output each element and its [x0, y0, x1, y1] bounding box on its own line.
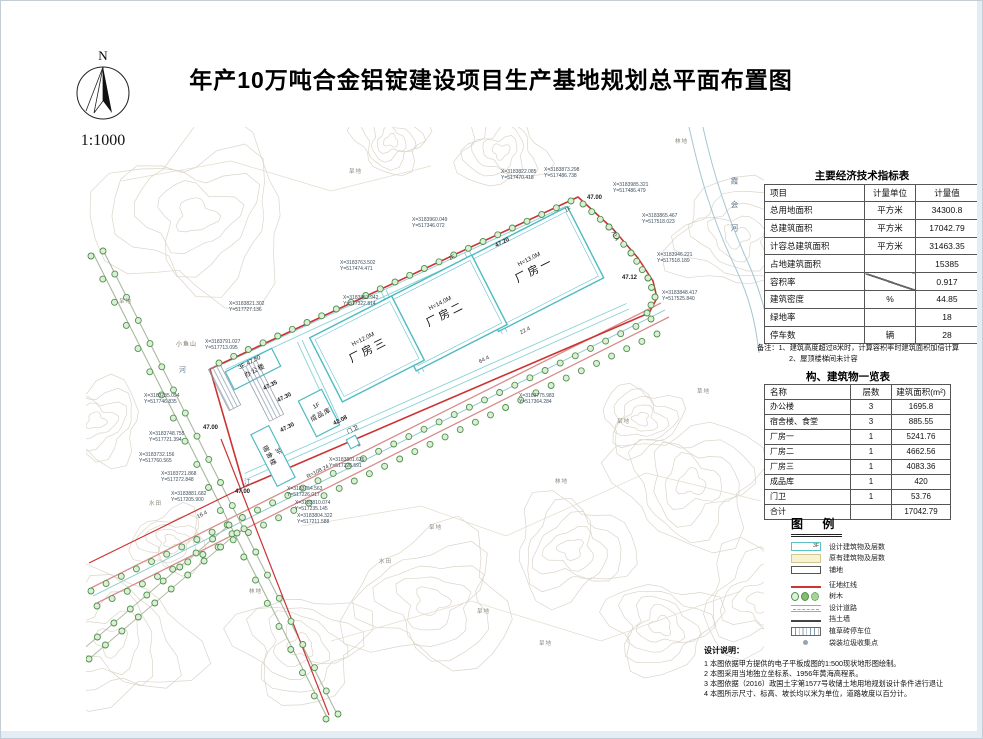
tree-icon [159, 392, 165, 398]
tree-icon [288, 647, 294, 653]
tree-icon [580, 201, 586, 207]
tree-icon [503, 405, 509, 411]
tree-icon [406, 434, 412, 440]
tree-icon [260, 340, 266, 346]
drawing-page: 年产10万吨合金铝锭建设项目生产基地规划总平面布置图 N 1:1000 H=13… [0, 0, 983, 739]
redline-swatch [791, 586, 821, 588]
tree-icon [421, 426, 427, 432]
tree-icon [472, 419, 478, 425]
contour-line [416, 587, 452, 616]
tree-icon [312, 665, 318, 671]
tree-icon [276, 623, 282, 629]
tree-icon [613, 233, 619, 239]
legend-label: 树木 [829, 591, 843, 601]
contour-line [747, 592, 775, 613]
field-line [331, 591, 741, 641]
table-cell: 1 [851, 489, 892, 504]
contour-line [631, 412, 649, 426]
contour-line [601, 422, 766, 553]
tree-icon [542, 368, 548, 374]
legend-label: 征地红线 [829, 580, 857, 590]
tree-icon [639, 338, 645, 344]
tree-icon [124, 294, 130, 300]
contour-line [373, 566, 485, 647]
tree-icon [397, 456, 403, 462]
table-cell: 总用地面积 [765, 202, 865, 220]
legend-label: 设计道路 [829, 603, 857, 613]
tree-icon [185, 559, 191, 565]
contour-line [542, 526, 593, 571]
header-row: 项目计量单位计量值 [765, 185, 979, 202]
table-cell: 办公楼 [765, 399, 851, 414]
tree-icon [88, 253, 94, 259]
legend-label: 挡土墙 [829, 614, 850, 624]
tree-icon [194, 461, 200, 467]
tree-icon [323, 688, 329, 694]
tree-icon [135, 614, 141, 620]
scale-label: 1:1000 [67, 132, 139, 150]
tree-icon [451, 412, 457, 418]
tree-icon [488, 412, 494, 418]
tree-icon [618, 331, 624, 337]
contour-line [79, 403, 119, 439]
table-cell: 平方米 [865, 202, 916, 220]
design-road-swatch [791, 605, 821, 612]
legend-item-design-building: 3F 设计建筑物及层数 [791, 542, 971, 551]
tree-icon [557, 360, 563, 366]
tree-icon [300, 642, 306, 648]
tree-icon [412, 449, 418, 455]
tree-icon [218, 544, 224, 550]
contour-line [628, 440, 756, 543]
table-cell: 0.917 [916, 273, 979, 291]
table-cell: 停车数 [765, 326, 865, 344]
field-line [121, 161, 431, 191]
tree-icon [103, 581, 109, 587]
tree-icon [442, 434, 448, 440]
table-cell: 宿舍楼、食堂 [765, 414, 851, 429]
legend: 3F 设计建筑物及层数 原有建筑物及层数 铺地 征地红线 树木 设计道路 挡土墙 [791, 542, 971, 650]
table-cell: 28 [916, 326, 979, 344]
tree-icon [275, 333, 281, 339]
tree-icon [321, 493, 327, 499]
tree-icon [168, 586, 174, 592]
legend-label: 设计建筑物及层数 [829, 542, 885, 552]
tree-icon [482, 397, 488, 403]
tree-icon [276, 515, 282, 521]
paving-swatch [791, 566, 821, 574]
contour-line [720, 561, 796, 634]
tree-icon [124, 588, 130, 594]
table-cell: 平方米 [865, 219, 916, 237]
table-cell: 厂房二 [765, 444, 851, 459]
tree-icon [527, 375, 533, 381]
design-note-1: 1 本图依据甲方提供的电子平板成图的1:500现状地形图绘制。 [704, 659, 980, 669]
tree-icon [179, 544, 185, 550]
contour-line [396, 577, 471, 630]
legend-item-garbage: 袋装垃圾收集点 [791, 638, 971, 647]
legend-item-redline: 征地红线 [791, 580, 971, 589]
table-cell: 1 [851, 474, 892, 489]
tree-icon [628, 250, 634, 256]
tree-icon [119, 628, 125, 634]
contour-line [31, 564, 211, 711]
retaining-wall-swatch [791, 620, 821, 622]
tree-icon [111, 620, 117, 626]
column-header: 项目 [765, 185, 865, 202]
tree-icon [201, 558, 207, 564]
table-cell: 1695.8 [892, 399, 951, 414]
contour-line [732, 578, 783, 626]
tree-icon [360, 456, 366, 462]
tree-icon [193, 550, 199, 556]
tree-icon [88, 588, 94, 594]
table-cell: 1 [851, 444, 892, 459]
tree-icon [264, 600, 270, 606]
tree-icon [78, 648, 84, 654]
tree-icon [147, 341, 153, 347]
tree-icon [572, 353, 578, 359]
table-row: 计容总建筑面积平方米31463.35 [765, 237, 979, 255]
tree-icon [644, 310, 650, 316]
tree-icon [336, 485, 342, 491]
table-row: 容积率0.917 [765, 273, 979, 291]
garbage-point-icon [358, 444, 361, 447]
tree-icon [109, 596, 115, 602]
existing-building-swatch [791, 554, 821, 563]
contour-line [492, 144, 510, 161]
tree-icon [563, 375, 569, 381]
tree-icon [466, 404, 472, 410]
design-note-4: 4 本图所示尺寸、标高、坡长均以米为单位，道路坡度以百分计。 [704, 689, 980, 699]
design-notes-title: 设计说明： [704, 645, 744, 656]
tree-icon [261, 522, 267, 528]
contour-line [353, 541, 489, 661]
tree-icon [553, 205, 559, 211]
legend-label: 植草砖停车位 [829, 626, 871, 636]
tree-icon [160, 578, 166, 584]
tree-icon [182, 438, 188, 444]
garbage-point-swatch [791, 638, 821, 647]
legend-item-paving: 铺地 [791, 565, 971, 574]
tree-icon [291, 507, 297, 513]
tree-icon [139, 581, 145, 587]
table-cell [865, 308, 916, 326]
table-cell: 辆 [865, 326, 916, 344]
table-cell: 17042.79 [892, 504, 951, 519]
field-line [301, 473, 761, 536]
tree-icon [270, 500, 276, 506]
table-row: 建筑密度%44.85 [765, 290, 979, 308]
tree-icon [127, 606, 133, 612]
tree-icon [185, 572, 191, 578]
tree-icon [226, 522, 232, 528]
tree-icon [578, 368, 584, 374]
tree-icon [548, 383, 554, 389]
tree-icon [333, 306, 339, 312]
tree-icon [241, 526, 247, 532]
contour-line [86, 412, 108, 429]
tree-icon [133, 566, 139, 572]
tree-icon [304, 320, 310, 326]
tree-icon [239, 515, 245, 521]
tree-icon [624, 346, 630, 352]
contour-line [603, 383, 686, 460]
contour-line [528, 498, 621, 591]
contour-line [384, 133, 398, 147]
table-cell: 31463.35 [916, 237, 979, 255]
contour-line [57, 388, 131, 462]
tree-icon [217, 508, 223, 514]
tree-icon [241, 554, 247, 560]
tree-icon [497, 390, 503, 396]
building-table: 名称层数建筑面积(m²)办公楼31695.8宿舍楼、食堂3885.55厂房一15… [764, 384, 951, 520]
tree-icon [633, 323, 639, 329]
tree-icon [597, 216, 603, 222]
table-cell: 5241.76 [892, 429, 951, 444]
tree-icon [645, 275, 651, 281]
table-cell: 成品库 [765, 474, 851, 489]
branch-road-edge [81, 525, 229, 651]
tree-icon [648, 302, 654, 308]
tree-icon [382, 463, 388, 469]
tree-icon [170, 415, 176, 421]
legend-title: 图 例 [791, 515, 842, 537]
building-table-title: 构、建筑物一览表 [764, 369, 932, 384]
table-cell: 计容总建筑面积 [765, 237, 865, 255]
legend-item-retaining-wall: 挡土墙 [791, 615, 971, 624]
tree-icon [345, 463, 351, 469]
table-row: 门卫153.76 [765, 489, 951, 504]
table-row: 绿地率18 [765, 308, 979, 326]
tree-icon [319, 313, 325, 319]
table-row: 宿舍楼、食堂3885.55 [765, 414, 951, 429]
tree-icon [539, 212, 545, 218]
table-row: 厂房一15241.76 [765, 429, 951, 444]
tree-icon [216, 360, 222, 366]
contour-line [134, 169, 259, 277]
table-cell: 厂房三 [765, 459, 851, 474]
tree-icon [265, 572, 271, 578]
tree-icon [568, 198, 574, 204]
table-cell: 3 [851, 399, 892, 414]
table-cell [865, 255, 916, 273]
tree-icon [255, 507, 261, 513]
contour-line [454, 109, 555, 186]
legend-item-trees: 树木 [791, 592, 971, 601]
north-arrow-icon: N [67, 47, 139, 125]
tree-icon [100, 248, 106, 254]
design-building-swatch: 3F [791, 542, 821, 551]
legend-label: 袋装垃圾收集点 [829, 638, 878, 648]
tree-icon [480, 239, 486, 245]
tree-icon [306, 500, 312, 506]
tree-icon [177, 564, 183, 570]
contour-lines [31, 109, 833, 711]
tree-icon [609, 353, 615, 359]
tree-icon [135, 346, 141, 352]
table-cell [851, 504, 892, 519]
tree-icon [621, 241, 627, 247]
tree-icon [588, 345, 594, 351]
tree-icon [639, 267, 645, 273]
tree-icon [218, 480, 224, 486]
contour-line [176, 198, 221, 232]
tree-icon [112, 299, 118, 305]
legend-label: 铺地 [829, 565, 843, 575]
tree-icon [206, 485, 212, 491]
tree-icon [164, 551, 170, 557]
table-row: 占地建筑面积15385 [765, 255, 979, 273]
header-row: 名称层数建筑面积(m²) [765, 385, 951, 400]
river-name-label: 霞会河 [729, 177, 740, 248]
page-edge-right [977, 1, 982, 738]
tree-icon [791, 592, 821, 601]
tree-icon [135, 317, 141, 323]
design-note-2: 2 本图采用当地独立坐标系、1956年黄海高程系。 [704, 669, 980, 679]
tree-icon [300, 670, 306, 676]
tree-icon [407, 272, 413, 278]
legend-item-design-road: 设计道路 [791, 603, 971, 612]
table-cell: 44.85 [916, 290, 979, 308]
tree-icon [363, 293, 369, 299]
contour-line [340, 516, 513, 671]
tree-icon [152, 600, 158, 606]
econ-table: 项目计量单位计量值总用地面积平方米34300.8总建筑面积平方米17042.79… [764, 184, 979, 344]
contour-line [618, 592, 716, 663]
tree-icon [533, 390, 539, 396]
contour-line [649, 615, 671, 636]
tree-icon [436, 259, 442, 265]
tree-icon [603, 338, 609, 344]
tree-icon [289, 326, 295, 332]
tree-icon [123, 322, 129, 328]
tree-icon [457, 427, 463, 433]
tree-icon [182, 410, 188, 416]
table-cell: 厂房一 [765, 429, 851, 444]
table-cell: 420 [892, 474, 951, 489]
tree-icon [594, 360, 600, 366]
tree-icon [606, 224, 612, 230]
contour-line [615, 397, 669, 437]
tree-icon [376, 448, 382, 454]
table-cell: 15385 [916, 255, 979, 273]
tree-icon [118, 573, 124, 579]
table-cell: 3 [851, 414, 892, 429]
tree-icon [323, 716, 329, 722]
contour-line [112, 144, 265, 297]
table-cell: 885.55 [892, 414, 951, 429]
tree-icon [465, 245, 471, 251]
tree-icon [649, 285, 655, 291]
drawing-title: 年产10万吨合金铝锭建设项目生产基地规划总平面布置图 [151, 61, 831, 95]
tree-icon [335, 711, 341, 717]
contour-line [628, 596, 702, 652]
design-note-3: 3 本图依据（2016）政国土字第1577号收储土地用地规划设计条件进行退让 [704, 679, 980, 689]
tree-icon [159, 364, 165, 370]
table-row: 总用地面积平方米34300.8 [765, 202, 979, 220]
table-row: 总建筑面积平方米17042.79 [765, 219, 979, 237]
contour-line [347, 113, 432, 176]
tree-icon [102, 642, 108, 648]
table-row: 厂房三14083.36 [765, 459, 951, 474]
table-cell: 53.76 [892, 489, 951, 504]
tree-icon [392, 279, 398, 285]
legend-item-parking: 植草砖停车位 [791, 627, 971, 636]
table-cell: 容积率 [765, 273, 865, 291]
table-cell: 34300.8 [916, 202, 979, 220]
contour-line [622, 405, 658, 431]
tree-icon [652, 294, 658, 300]
tree-icon [285, 492, 291, 498]
tree-icon [245, 347, 251, 353]
contour-line [556, 540, 583, 561]
tree-icon [86, 656, 92, 662]
tree-icon [194, 537, 200, 543]
tree-icon [194, 433, 200, 439]
tree-icon [112, 271, 118, 277]
parking-swatch [791, 627, 821, 636]
table-cell: 17042.79 [916, 219, 979, 237]
column-header: 建筑面积(m²) [892, 385, 951, 400]
tree-icon [144, 592, 150, 598]
table-row: 成品库1420 [765, 474, 951, 489]
tree-icon [147, 369, 153, 375]
econ-table-title: 主要经济技术指标表 [764, 168, 960, 183]
north-label: N [98, 48, 108, 63]
contour-line [637, 605, 685, 642]
contour-line [377, 126, 406, 154]
table-cell: 4662.56 [892, 444, 951, 459]
legend-label: 原有建筑物及层数 [829, 553, 885, 563]
tree-icon [348, 299, 354, 305]
tree-icon [155, 574, 161, 580]
tree-icon [351, 478, 357, 484]
contour-line [371, 120, 416, 162]
tree-icon [589, 209, 595, 215]
column-header: 计量值 [916, 185, 979, 202]
tree-icon [171, 387, 177, 393]
tree-icon [149, 559, 155, 565]
contour-line [247, 607, 364, 692]
table-cell: 占地建筑面积 [765, 255, 865, 273]
tree-icon [377, 286, 383, 292]
tree-icon [200, 552, 206, 558]
tree-icon [94, 634, 100, 640]
contour-line [471, 125, 524, 176]
contour-line [665, 452, 721, 509]
table-cell: 总建筑面积 [765, 219, 865, 237]
tree-icon [234, 530, 240, 536]
tree-icon [654, 331, 660, 337]
tree-icon [315, 478, 321, 484]
column-header: 名称 [765, 385, 851, 400]
contour-line [654, 442, 740, 527]
tree-icon [229, 503, 235, 509]
econ-table-note: 2、屋顶楼梯间未计容 [789, 354, 858, 364]
contour-line [158, 181, 244, 254]
tree-icon [330, 470, 336, 476]
tree-icon [648, 316, 654, 322]
table-cell: 建筑密度 [765, 290, 865, 308]
tree-icon [94, 603, 100, 609]
tree-icon [311, 693, 317, 699]
tree-icon [518, 397, 524, 403]
table-row: 办公楼31695.8 [765, 399, 951, 414]
tree-icon [230, 537, 236, 543]
column-header: 计量单位 [865, 185, 916, 202]
tree-icon [253, 577, 259, 583]
